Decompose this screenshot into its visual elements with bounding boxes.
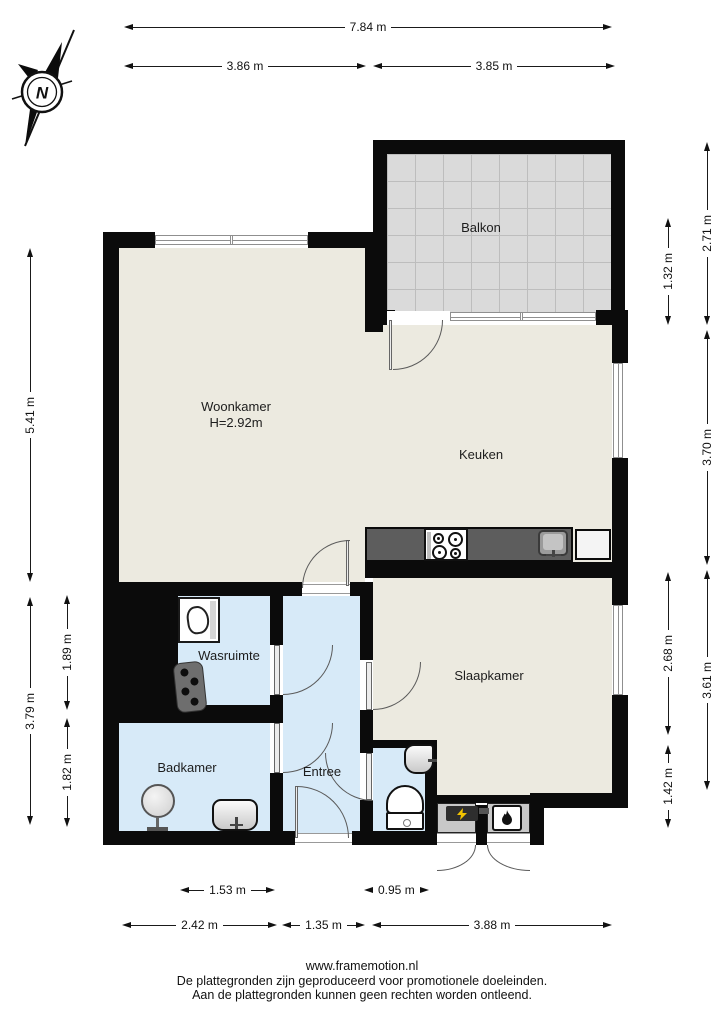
- balcony-window: [450, 312, 596, 321]
- footer-disclaimer-1: De plattegronden zijn geproduceerd voor …: [0, 974, 724, 989]
- washing-machine-band: [210, 601, 216, 639]
- footer-disclaimer-2: Aan de plattegronden kunnen geen rechten…: [0, 988, 724, 1003]
- room-label-woonkamer: Woonkamer H=2.92m: [201, 399, 271, 431]
- wall-segment: [437, 795, 530, 803]
- wall-segment: [352, 831, 437, 845]
- washing-machine-drum: [185, 605, 211, 636]
- compass-north-label: N: [36, 84, 49, 103]
- dim-kitchen-height: 3.70 m: [700, 330, 714, 565]
- room-label-wasruimte: Wasruimte: [198, 648, 260, 664]
- floorplan-canvas: N N: [0, 0, 724, 1024]
- room-label-badkamer: Badkamer: [157, 760, 216, 776]
- wall-segment: [612, 695, 628, 807]
- door-leaf: [274, 723, 280, 773]
- room-label-slaapkamer: Slaapkamer: [454, 668, 523, 684]
- window-mullion: [230, 235, 233, 245]
- sink-basin: [543, 534, 563, 550]
- shower-icon: [141, 784, 175, 818]
- wall-segment: [360, 710, 373, 753]
- window-mullion: [520, 312, 523, 321]
- compass-rose-icon: N: [4, 22, 104, 152]
- dim-total-width: 7.84 m: [124, 20, 612, 34]
- sink-faucet-bar: [546, 554, 561, 556]
- electric-meter-icon: [446, 806, 478, 821]
- wall-segment: [360, 582, 373, 660]
- washing-machine-icon: [178, 597, 220, 643]
- dim-laundry-height: 1.89 m: [60, 595, 74, 710]
- kitchen-appliance: [575, 529, 611, 560]
- room-label-entree: Entree: [303, 764, 341, 780]
- washbasin-icon: [212, 799, 258, 831]
- room-label-keuken: Keuken: [459, 447, 503, 463]
- dim-bedroom-lower: 1.42 m: [661, 745, 675, 828]
- burner-icon: [448, 532, 463, 547]
- corner-washbasin-icon: [404, 744, 434, 774]
- wall-segment: [612, 310, 628, 363]
- wall-segment: [270, 695, 283, 723]
- dim-bedroom-height: 3.61 m: [700, 570, 714, 790]
- stove-icon: [424, 528, 468, 561]
- kitchen-window: [613, 363, 623, 458]
- burner-icon: [432, 545, 447, 560]
- wall-segment: [308, 232, 373, 248]
- heater-flame-icon: [492, 805, 522, 831]
- woonkamer-ceiling-height: H=2.92m: [201, 415, 271, 431]
- door-swing-arc: [437, 845, 476, 871]
- wall-segment: [365, 248, 383, 332]
- sink-icon: [538, 530, 568, 556]
- dim-hall-width: 1.35 m: [282, 918, 365, 932]
- dim-balcony-height: 2.71 m: [700, 142, 714, 325]
- wall-segment: [611, 140, 625, 312]
- wall-segment: [103, 582, 178, 718]
- footer-website: www.framemotion.nl: [0, 959, 724, 974]
- wall-segment: [103, 232, 119, 845]
- boiler-icon: [172, 661, 207, 714]
- dim-bedroom-upper: 2.68 m: [661, 572, 675, 735]
- wall-segment: [270, 582, 283, 645]
- door-leaf: [389, 320, 392, 370]
- dim-bathroom-width: 2.42 m: [122, 918, 277, 932]
- footer: www.framemotion.nl De plattegronden zijn…: [0, 959, 724, 1003]
- door-swing-arc: [487, 845, 530, 871]
- wall-segment: [373, 140, 625, 154]
- wall-segment: [270, 773, 283, 835]
- dim-width-right: 3.85 m: [373, 59, 615, 73]
- dim-bathroom-height: 1.82 m: [60, 718, 74, 827]
- dim-wc-width: 0.95 m: [364, 883, 428, 897]
- wall-segment: [530, 793, 628, 808]
- wall-segment: [530, 805, 544, 845]
- wall-segment: [360, 800, 373, 835]
- door-leaf: [274, 645, 280, 695]
- wall-segment: [365, 562, 612, 578]
- shower-base: [147, 827, 168, 831]
- door-leaf: [366, 662, 372, 710]
- dim-width-left: 3.86 m: [124, 59, 366, 73]
- wall-segment: [103, 831, 295, 845]
- bedroom-window: [613, 605, 623, 695]
- closet-door-threshold: [487, 833, 530, 843]
- woonkamer-name: Woonkamer: [201, 399, 271, 415]
- dim-lower-left-height: 3.79 m: [23, 597, 37, 825]
- dim-livingroom-height: 5.41 m: [23, 248, 37, 582]
- burner-icon: [450, 548, 461, 559]
- stove-controls: [427, 532, 431, 559]
- meter-attachment: [479, 808, 489, 814]
- wall-segment: [612, 458, 628, 605]
- room-label-balkon: Balkon: [461, 220, 501, 236]
- dim-bedroom-width: 3.88 m: [372, 918, 612, 932]
- dim-laundry-width: 1.53 m: [180, 883, 275, 897]
- toilet-tank: [386, 812, 424, 830]
- dim-balcony-lower: 1.32 m: [661, 218, 675, 325]
- closet-door-threshold: [437, 833, 476, 843]
- burner-icon: [433, 533, 444, 544]
